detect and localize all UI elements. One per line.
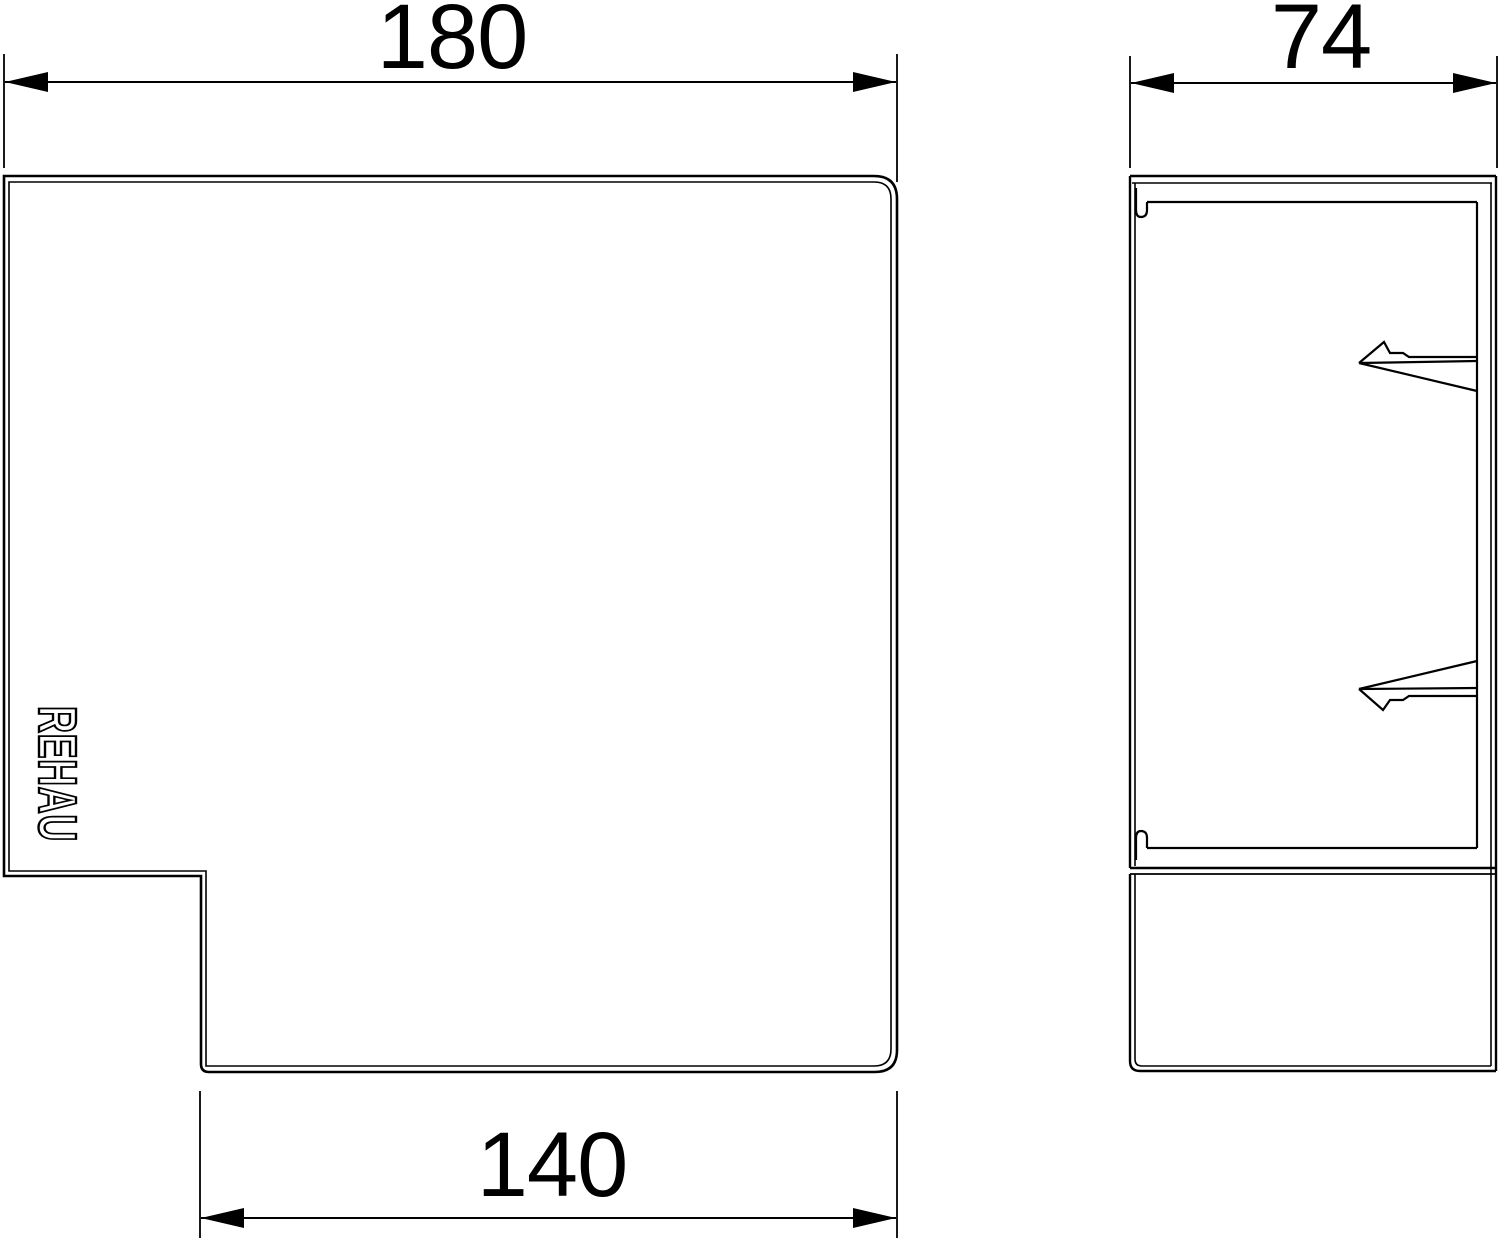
dimension-front-top-width: 180 <box>4 0 897 182</box>
front-bottom-dimension-value: 140 <box>477 1114 628 1216</box>
lower-clip-barb <box>1359 689 1477 710</box>
dimension-front-bottom-width: 140 <box>200 1091 897 1238</box>
front-view-outer-contour <box>4 176 897 1072</box>
upper-clip-middle <box>1359 361 1477 363</box>
side-arrow-left <box>1131 73 1174 93</box>
side-top-hook <box>1136 188 1147 217</box>
side-lower-clip <box>1359 661 1477 710</box>
side-view <box>1130 176 1496 1071</box>
technical-drawing-page: REHAU <box>0 0 1500 1238</box>
front-view-inner-contour <box>9 182 891 1066</box>
front-view: REHAU <box>4 176 897 1072</box>
upper-clip-leg <box>1359 363 1477 391</box>
front-bottom-arrow-right <box>853 1208 896 1228</box>
front-top-arrow-right <box>853 72 896 92</box>
side-dimension-value: 74 <box>1271 0 1371 88</box>
rehau-logo: REHAU <box>27 706 87 842</box>
side-bottom-hook <box>1136 831 1147 860</box>
side-arrow-right <box>1453 73 1496 93</box>
technical-drawing-canvas: REHAU <box>0 0 1500 1238</box>
front-top-dimension-value: 180 <box>377 0 528 88</box>
side-base-inner <box>1135 874 1491 1066</box>
side-upper-clip <box>1359 342 1477 391</box>
side-base-outer <box>1130 874 1496 1071</box>
lower-clip-leg <box>1359 661 1477 689</box>
front-top-arrow-left <box>5 72 48 92</box>
dimension-side-width: 74 <box>1130 0 1497 168</box>
front-bottom-arrow-left <box>201 1208 244 1228</box>
lower-clip-middle <box>1359 688 1477 689</box>
upper-clip-barb <box>1359 342 1477 363</box>
